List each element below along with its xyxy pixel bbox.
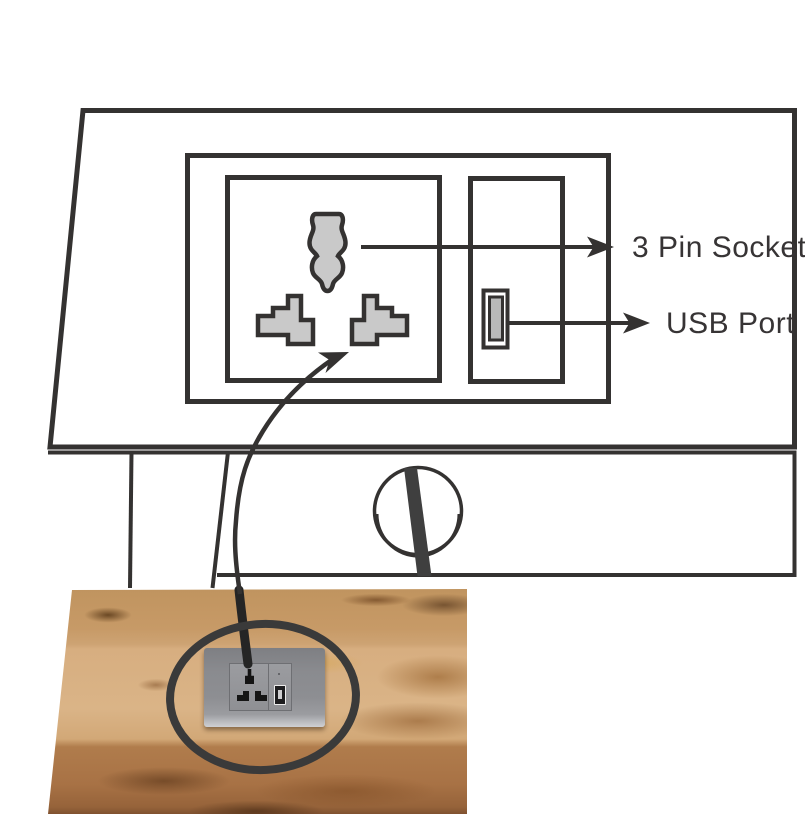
earth-slot-symbol	[310, 214, 346, 291]
left-pin-hole-icon	[237, 691, 249, 701]
usb-slot-symbol	[490, 297, 503, 340]
usb-receptacle-icon	[274, 685, 286, 705]
photo-usb-port	[269, 664, 291, 710]
usb-tab	[278, 690, 282, 699]
projection-line-left	[130, 452, 132, 588]
earth-pin-hole-icon	[245, 669, 254, 684]
usb-arrowhead	[623, 313, 650, 334]
cable-through-grommet	[404, 468, 432, 576]
desk-top-outline	[50, 111, 795, 448]
figure-canvas: 3 Pin Socket USB Port	[0, 0, 805, 814]
socket-panel-photo	[204, 648, 325, 727]
panel-recess	[229, 663, 292, 711]
pin-socket-label: 3 Pin Socket	[632, 232, 805, 264]
pin-socket-arrowhead	[587, 237, 614, 258]
usb-port-symbol	[484, 291, 508, 348]
cable-grommet-icon	[375, 468, 462, 555]
left-pin-slot-symbol	[258, 296, 313, 344]
grommet-lip	[377, 514, 459, 556]
usb-port-label: USB Port	[666, 308, 795, 340]
face-plate-outline	[188, 156, 609, 402]
wood-table-photo	[46, 589, 467, 814]
photo-to-diagram-arrow	[235, 359, 333, 594]
usb-led-dot	[278, 673, 280, 675]
socket-module-outline	[228, 178, 440, 381]
desk-edge-band	[48, 453, 795, 576]
photo-three-pin-socket	[230, 664, 269, 710]
right-pin-slot-symbol	[352, 296, 407, 344]
photo-to-diagram-arrowhead	[318, 352, 349, 373]
projection-line-right	[213, 452, 229, 588]
usb-module-outline	[471, 179, 563, 382]
right-pin-hole-icon	[255, 691, 267, 701]
